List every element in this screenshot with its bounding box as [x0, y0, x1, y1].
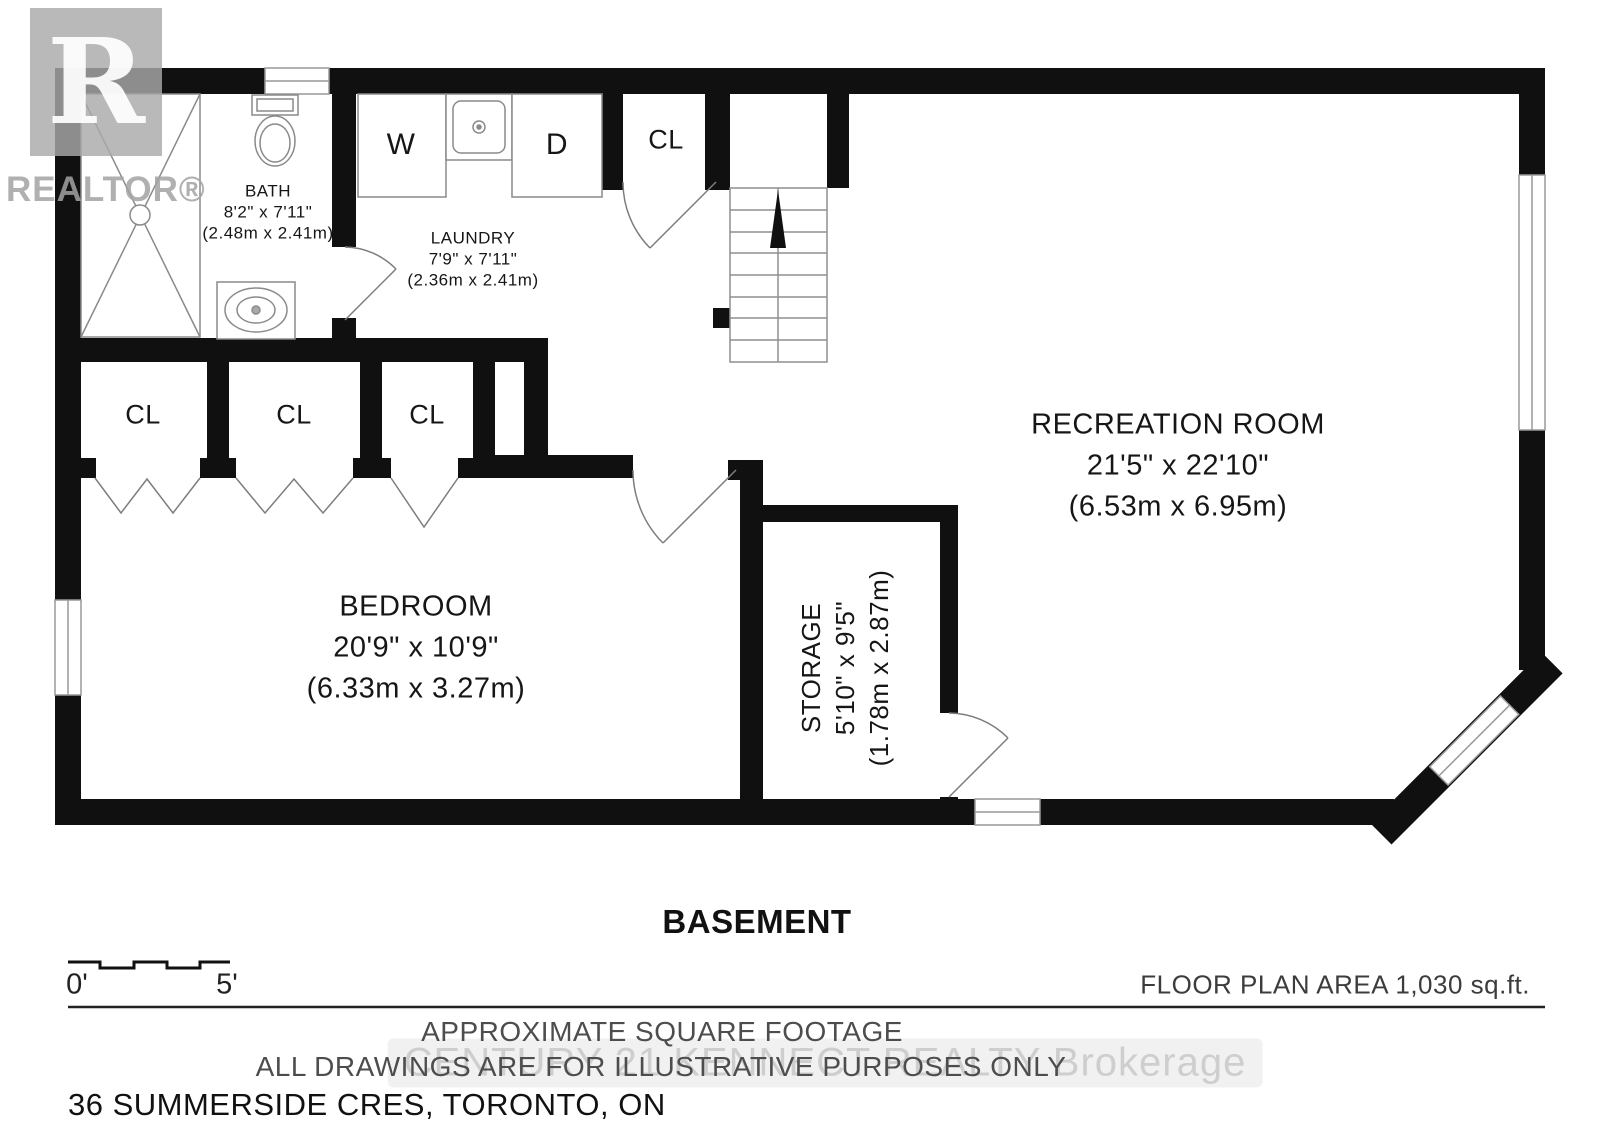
wall-stub — [458, 458, 495, 478]
door-top-closet — [623, 182, 650, 248]
closet-label-top: CL — [648, 125, 684, 156]
room-label-bath: BATH 8'2" x 7'11" (2.48m x 2.41m) — [202, 181, 333, 244]
door-bifold-cl3 — [391, 478, 458, 527]
scale-label-end: 5' — [216, 969, 238, 1002]
room-dim-metric: (6.53m x 6.95m) — [1031, 487, 1325, 528]
wall-stub — [940, 797, 958, 825]
wall-cl2-cl3 — [360, 362, 382, 458]
realtor-logo: R — [30, 8, 162, 156]
wall-stub — [200, 458, 236, 478]
property-address: 36 SUMMERSIDE CRES, TORONTO, ON — [68, 1087, 666, 1123]
closet-label-2: CL — [276, 400, 312, 431]
room-name: BATH — [202, 181, 333, 202]
room-dim-imperial: 5'10" x 9'5" — [828, 570, 862, 767]
wall-cl3-right — [473, 362, 495, 458]
room-name: LAUNDRY — [407, 228, 538, 249]
closet-label-1: CL — [125, 400, 161, 431]
wall-storage-right — [940, 505, 958, 713]
chamfer-corner — [1370, 652, 1562, 844]
door-bedroom — [633, 470, 663, 543]
room-dim-metric: (1.78m x 2.87m) — [862, 570, 896, 767]
wall-right-upper — [1519, 94, 1545, 175]
wall-top-right — [329, 68, 1545, 94]
room-name: STORAGE — [794, 570, 828, 767]
room-dim-metric: (6.33m x 3.27m) — [307, 669, 526, 710]
door-bath — [345, 247, 396, 269]
room-label-laundry: LAUNDRY 7'9" x 7'11" (2.36m x 2.41m) — [407, 228, 538, 291]
floor-name-title: BASEMENT — [662, 903, 851, 941]
realtor-logo-letter: R — [47, 23, 145, 141]
door-bifold-cl1 — [95, 478, 200, 513]
closet-label-3: CL — [409, 400, 445, 431]
floor-plan-page: BATH 8'2" x 7'11" (2.48m x 2.41m) LAUNDR… — [0, 0, 1600, 1131]
wall-stub — [713, 308, 730, 328]
floor-plan-area-text: FLOOR PLAN AREA 1,030 sq.ft. — [1140, 970, 1530, 1001]
wall-right-lower — [1519, 430, 1545, 670]
room-dim-imperial: 21'5" x 22'10" — [1031, 446, 1325, 487]
room-dim-metric: (2.48m x 2.41m) — [202, 223, 333, 244]
wall-closet-top — [55, 338, 548, 362]
wall-cl1-cl2 — [207, 362, 229, 458]
door-bifold-cl2 — [236, 478, 353, 513]
scale-bar — [68, 962, 230, 968]
wall-stub — [601, 173, 623, 190]
wall-bath-stub — [332, 318, 356, 340]
washer-label: W — [387, 128, 416, 162]
wall-stub — [80, 458, 96, 478]
room-dim-imperial: 7'9" x 7'11" — [407, 249, 538, 270]
wall-stairs-right — [827, 93, 849, 188]
floor-plan-drawing — [0, 0, 1600, 1131]
room-name: BEDROOM — [307, 587, 526, 628]
scale-label-start: 0' — [66, 969, 88, 1002]
wall-stub — [353, 458, 391, 478]
wall-storage-top — [757, 505, 957, 522]
room-label-recreation: RECREATION ROOM 21'5" x 22'10" (6.53m x … — [1031, 405, 1325, 528]
wall-stairs-left — [705, 93, 730, 188]
room-dim-metric: (2.36m x 2.41m) — [407, 270, 538, 291]
wall-bedroom-door-left — [473, 455, 633, 478]
room-dim-imperial: 8'2" x 7'11" — [202, 202, 333, 223]
room-name: RECREATION ROOM — [1031, 405, 1325, 446]
room-label-bedroom: BEDROOM 20'9" x 10'9" (6.33m x 3.27m) — [307, 587, 526, 710]
dryer-label: D — [546, 128, 568, 162]
room-label-storage: STORAGE 5'10" x 9'5" (1.78m x 2.87m) — [794, 570, 896, 767]
wall-bath-laundry — [332, 93, 356, 247]
faucet — [252, 306, 260, 314]
disclaimer-line-1: APPROXIMATE SQUARE FOOTAGE — [421, 1016, 903, 1048]
door-storage — [949, 713, 1008, 738]
wall-bottom-right — [1040, 799, 1394, 825]
wall-bottom-left — [55, 799, 975, 825]
stairs-up-arrow — [770, 190, 786, 248]
disclaimer-line-2: ALL DRAWINGS ARE FOR ILLUSTRATIVE PURPOS… — [256, 1051, 1067, 1083]
room-dim-imperial: 20'9" x 10'9" — [307, 628, 526, 669]
wall-topcl-left — [601, 93, 623, 173]
realtor-logo-text: REALTOR® — [6, 170, 206, 210]
